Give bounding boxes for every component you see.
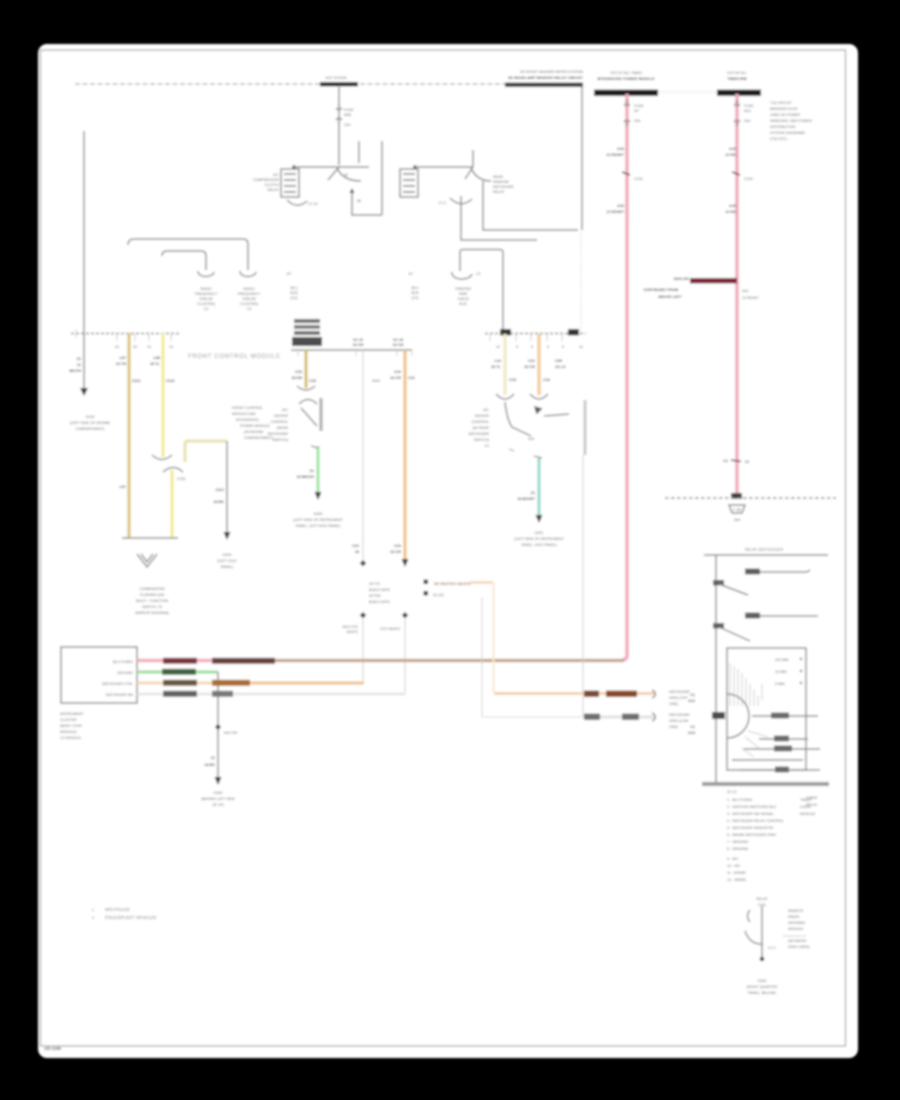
- svg-text:FLASHER (ON: FLASHER (ON: [140, 593, 165, 597]
- svg-text:B(+) FUSED: B(+) FUSED: [113, 660, 133, 664]
- svg-text:8 - GROUND: 8 - GROUND: [727, 847, 749, 851]
- svg-text:RADIO: RADIO: [243, 287, 255, 291]
- svg-text:B(+): B(+): [412, 286, 419, 290]
- svg-text:5 MIN: 5 MIN: [775, 682, 785, 686]
- svg-text:18 BK/OR: 18 BK/OR: [296, 475, 314, 479]
- svg-text:9: 9: [516, 345, 518, 349]
- svg-text:SWITCH, IN: SWITCH, IN: [142, 605, 162, 609]
- svg-text:SEATS: SEATS: [346, 630, 358, 634]
- svg-text:(W/ REAR: (W/ REAR: [472, 426, 489, 430]
- svg-text:18: 18: [355, 550, 359, 554]
- svg-text:DEFOGGER: DEFOGGER: [267, 432, 288, 436]
- svg-text:RELAY: RELAY: [493, 190, 505, 194]
- svg-text:GROUND: GROUND: [117, 671, 133, 675]
- svg-text:8: 8: [531, 345, 533, 349]
- svg-text:Z1: Z1: [310, 469, 314, 473]
- svg-text:HOT AT ALL TIMES: HOT AT ALL TIMES: [610, 71, 642, 75]
- svg-text:CLUSTER): CLUSTER): [197, 302, 215, 306]
- svg-text:23: 23: [133, 345, 137, 349]
- svg-text:14: 14: [147, 345, 151, 349]
- svg-text:C16: C16: [543, 378, 550, 382]
- svg-text:B7: B7: [287, 272, 291, 276]
- svg-text:6: 6: [547, 345, 549, 349]
- svg-text:C2: C2: [476, 272, 481, 276]
- svg-text:B(+): B(+): [291, 286, 298, 290]
- svg-text:Z110: Z110: [166, 379, 174, 383]
- svg-text:WINDOWS, SEE POWER: WINDOWS, SEE POWER: [770, 119, 812, 123]
- svg-text:F SB: F SB: [733, 508, 742, 512]
- svg-text:12 RD/WT: 12 RD/WT: [606, 153, 624, 157]
- svg-text:10 - N/C: 10 - N/C: [727, 864, 741, 868]
- svg-text:C20: C20: [309, 379, 316, 383]
- svg-text:18 YL: 18 YL: [491, 365, 502, 369]
- svg-text:SWITCH): SWITCH): [273, 438, 288, 442]
- svg-text:BUS: BUS: [290, 291, 298, 295]
- svg-text:SWITCH): SWITCH): [474, 438, 489, 442]
- svg-text:CONTINUED FROM: CONTINUED FROM: [643, 288, 678, 292]
- svg-text:G300: G300: [214, 791, 223, 795]
- svg-text:30: 30: [344, 173, 348, 177]
- svg-text:(IN ENGINE: (IN ENGINE: [244, 430, 264, 434]
- svg-text:BUILD DATE: BUILD DATE: [369, 600, 391, 604]
- svg-text:SYSTEM DIAGRAMS: SYSTEM DIAGRAMS: [770, 131, 806, 135]
- svg-text:HEATER: HEATER: [475, 414, 490, 418]
- svg-text:C2: C2: [484, 444, 489, 448]
- svg-text:G201: G201: [535, 531, 544, 535]
- svg-text:REAR: REAR: [493, 175, 503, 179]
- svg-text:20A: 20A: [744, 119, 751, 123]
- svg-text:DEFOGGER: DEFOGGER: [493, 185, 514, 189]
- svg-text:TIMES IPM: TIMES IPM: [727, 77, 746, 81]
- svg-text:M7: M7: [634, 109, 639, 113]
- svg-text:LOGIC: LOGIC: [800, 805, 812, 809]
- svg-text:COMPRESSOR: COMPRESSOR: [253, 178, 279, 182]
- svg-text:18 BK/WT: 18 BK/WT: [517, 497, 535, 501]
- svg-text:G100: G100: [86, 415, 95, 419]
- svg-text:DEFOGGER CTRL: DEFOGGER CTRL: [102, 682, 133, 686]
- svg-text:18 OR: 18 OR: [390, 550, 401, 554]
- svg-text:M12: M12: [744, 109, 751, 113]
- svg-text:RADIO: RADIO: [788, 915, 800, 919]
- svg-text:MULTI - FUNCTION: MULTI - FUNCTION: [136, 599, 169, 603]
- svg-text:1: 1: [92, 908, 94, 912]
- svg-text:W/ FRONT WASHER WIPER SYSTEM: W/ FRONT WASHER WIPER SYSTEM: [520, 70, 583, 74]
- svg-text:(LEFT SIDE OF ENGINE: (LEFT SIDE OF ENGINE: [70, 421, 111, 425]
- svg-text:FREQUENCY: FREQUENCY: [238, 292, 261, 296]
- svg-text:(T16 CKT): (T16 CKT): [770, 137, 787, 141]
- svg-text:TWISTED: TWISTED: [455, 287, 472, 291]
- svg-text:10 MIN: 10 MIN: [775, 670, 787, 674]
- svg-text:T16 CIRCUIT: T16 CIRCUIT: [770, 101, 793, 105]
- svg-text:BUS: BUS: [459, 302, 467, 306]
- svg-text:9 - N/C: 9 - N/C: [727, 857, 739, 861]
- svg-text:5: 5: [562, 345, 564, 349]
- svg-text:C1: C1: [690, 693, 695, 697]
- svg-text:18 DB: 18 DB: [291, 376, 302, 380]
- svg-text:22 C2: 22 C2: [727, 790, 737, 794]
- svg-text:C2 MODULE: C2 MODULE: [60, 736, 82, 740]
- svg-text:C22: C22: [352, 544, 359, 548]
- svg-text:18 OR: 18 OR: [390, 376, 401, 380]
- svg-text:C104: C104: [744, 177, 753, 181]
- svg-text:COMPARTMENT): COMPARTMENT): [244, 436, 273, 440]
- svg-text:AFTER: AFTER: [369, 594, 381, 598]
- svg-text:MODULE: MODULE: [800, 812, 816, 816]
- svg-text:24: 24: [115, 345, 119, 349]
- svg-text:REMOTE: REMOTE: [788, 909, 804, 913]
- svg-text:20A: 20A: [634, 119, 641, 123]
- svg-text:BUILD DATE: BUILD DATE: [369, 588, 391, 592]
- svg-text:30A: 30A: [734, 518, 741, 522]
- svg-text:RELAY: RELAY: [756, 897, 768, 901]
- svg-text:A22: A22: [528, 437, 534, 441]
- svg-text:1 - B(+) FUSED: 1 - B(+) FUSED: [727, 798, 753, 802]
- svg-text:CAN B: CAN B: [458, 297, 470, 301]
- svg-text:10: 10: [496, 345, 500, 349]
- svg-text:G302: G302: [758, 979, 767, 983]
- svg-text:FUSE: FUSE: [744, 104, 754, 108]
- svg-text:B6: B6: [745, 460, 749, 464]
- svg-text:A16: A16: [617, 204, 624, 208]
- svg-text:PANEL): PANEL): [221, 565, 234, 569]
- svg-text:PAIR: PAIR: [459, 292, 468, 296]
- svg-text:A8-1100: A8-1100: [44, 1046, 62, 1051]
- svg-text:12 - SPARE: 12 - SPARE: [727, 878, 747, 882]
- svg-text:LINE): LINE): [669, 725, 678, 729]
- svg-text:DEFOGGER: DEFOGGER: [669, 713, 690, 717]
- svg-text:UP TO: UP TO: [369, 582, 380, 586]
- svg-text:INTEGRATED: INTEGRATED: [236, 418, 259, 422]
- svg-text:L88: L88: [153, 356, 160, 360]
- svg-text:18 YL: 18 YL: [150, 362, 161, 366]
- svg-text:(RIGHT QUARTER: (RIGHT QUARTER: [747, 985, 778, 989]
- svg-text:C15: C15: [509, 378, 516, 382]
- svg-text:C1 4: C1 4: [438, 201, 446, 205]
- svg-text:Z1: Z1: [531, 491, 535, 495]
- svg-text:L87: L87: [119, 356, 126, 360]
- svg-text:10A: 10A: [344, 123, 351, 127]
- svg-text:18 OR: 18 OR: [524, 365, 535, 369]
- svg-text:DEFOGGER: DEFOGGER: [468, 432, 489, 436]
- svg-text:POLICE/FLEET VEHICLES: POLICE/FLEET VEHICLES: [105, 915, 157, 920]
- svg-text:4040: 4040: [372, 379, 380, 383]
- svg-text:2: 2: [92, 916, 94, 920]
- svg-text:12 RD/WT: 12 RD/WT: [742, 296, 760, 300]
- svg-text:BUS: BUS: [411, 291, 419, 295]
- svg-text:CONTROL: CONTROL: [471, 420, 489, 424]
- svg-text:Z112: Z112: [132, 379, 140, 383]
- svg-text:C24: C24: [394, 544, 402, 548]
- svg-text:3 - DEFOGGER SW SIGNAL: 3 - DEFOGGER SW SIGNAL: [727, 812, 774, 816]
- svg-text:HUB (IN: HUB (IN: [242, 297, 256, 301]
- svg-text:86: 86: [357, 199, 361, 203]
- svg-text:COMBINATION: COMBINATION: [139, 587, 164, 591]
- svg-text:12: 12: [579, 345, 583, 349]
- svg-text:13: 13: [169, 345, 173, 349]
- svg-text:W/ HEADLAMP WASHER RELAY CIRCU: W/ HEADLAMP WASHER RELAY CIRCUIT: [508, 76, 583, 80]
- svg-text:W/O HTD: W/O HTD: [342, 625, 358, 629]
- svg-text:A16: A16: [617, 147, 624, 151]
- svg-text:FRONT CONTROL MODULE: FRONT CONTROL MODULE: [188, 354, 281, 360]
- svg-text:WINDOW: WINDOW: [493, 180, 509, 184]
- svg-text:2 - IGNITION SWITCHED B(+): 2 - IGNITION SWITCHED B(+): [727, 805, 776, 809]
- svg-text:C90: C90: [555, 359, 562, 363]
- svg-text:CLUSTER): CLUSTER): [240, 302, 258, 306]
- svg-text:HUB (IN: HUB (IN: [199, 297, 213, 301]
- svg-text:(W/ AM/FM: (W/ AM/FM: [788, 939, 806, 943]
- svg-text:MODULE: MODULE: [788, 927, 804, 931]
- svg-text:GRID LINES): GRID LINES): [788, 945, 810, 949]
- svg-text:100 MIN: 100 MIN: [775, 658, 789, 662]
- svg-text:W/ HEATED SEATS: W/ HEATED SEATS: [434, 581, 471, 586]
- svg-text:Z2: Z2: [77, 357, 81, 361]
- svg-text:HEATER: HEATER: [274, 414, 289, 418]
- svg-text:18 BK: 18 BK: [213, 500, 224, 504]
- svg-text:FUSE: FUSE: [634, 104, 644, 108]
- svg-text:LINE): LINE): [669, 702, 678, 706]
- svg-text:C1: C1: [690, 725, 695, 729]
- svg-text:BK/TN: BK/TN: [69, 369, 81, 373]
- svg-text:FRONT CONTROL: FRONT CONTROL: [232, 406, 263, 410]
- svg-text:(BEHIND LEFT SIDE: (BEHIND LEFT SIDE: [201, 797, 235, 801]
- svg-text:12 RD/WT: 12 RD/WT: [606, 210, 624, 214]
- svg-text:18 OR: 18 OR: [353, 343, 364, 347]
- svg-text:A10: A10: [729, 204, 736, 208]
- svg-text:G200: G200: [223, 553, 232, 557]
- svg-text:C1 2: C1 2: [768, 946, 776, 950]
- svg-text:REAR DEFOGGER: REAR DEFOGGER: [745, 547, 784, 552]
- svg-text:A/C: A/C: [282, 408, 288, 412]
- svg-text:ANTENNA: ANTENNA: [788, 921, 806, 925]
- svg-text:Z112: Z112: [216, 488, 224, 492]
- svg-text:RELAY: RELAY: [267, 188, 279, 192]
- svg-text:C21: C21: [408, 376, 415, 380]
- svg-text:OF I/P): OF I/P): [212, 803, 224, 807]
- svg-text:CLUSTER: CLUSTER: [60, 718, 77, 722]
- svg-text:18 OR: 18 OR: [393, 343, 404, 347]
- svg-text:TIMER: TIMER: [800, 798, 812, 802]
- svg-text:(REAR: (REAR: [277, 426, 289, 430]
- svg-text:(C2): (C2): [412, 296, 419, 300]
- svg-text:A10: A10: [742, 289, 748, 293]
- svg-text:USED W/ POWER: USED W/ POWER: [770, 113, 800, 117]
- svg-text:11 - SPARE: 11 - SPARE: [727, 871, 746, 875]
- svg-text:BREAKER ALSO: BREAKER ALSO: [770, 107, 798, 111]
- svg-text:W/O RR: W/O RR: [224, 731, 238, 735]
- svg-text:ABOVE LEFT: ABOVE LEFT: [658, 295, 683, 299]
- svg-text:(C2): (C2): [291, 296, 298, 300]
- svg-text:C24: C24: [394, 370, 402, 374]
- svg-text:DEFOGGER SW: DEFOGGER SW: [106, 693, 134, 697]
- svg-text:5 - DEFOGGER INDICATOR: 5 - DEFOGGER INDICATOR: [727, 826, 774, 830]
- svg-text:MODULE): MODULE): [60, 730, 77, 734]
- svg-text:GRID (LOW: GRID (LOW: [669, 719, 689, 723]
- svg-text:18 LG: 18 LG: [555, 365, 566, 369]
- svg-text:HOT IN RUN: HOT IN RUN: [326, 76, 347, 80]
- svg-text:PANEL, BELOW): PANEL, BELOW): [748, 991, 776, 995]
- svg-text:C3: C3: [247, 307, 252, 311]
- svg-text:7 - GROUND: 7 - GROUND: [727, 840, 749, 844]
- svg-text:18 TN: 18 TN: [116, 362, 127, 366]
- svg-text:MODULE AND: MODULE AND: [232, 412, 256, 416]
- svg-text:A/C: A/C: [273, 173, 279, 177]
- svg-text:12 RD: 12 RD: [725, 153, 736, 157]
- svg-text:4 - DEFOGGER RELAY CONTROL: 4 - DEFOGGER RELAY CONTROL: [727, 819, 784, 823]
- svg-text:C1: C1: [723, 459, 728, 463]
- svg-text:HTD SEATS: HTD SEATS: [380, 627, 401, 631]
- svg-text:INSTRUMENT: INSTRUMENT: [60, 712, 84, 716]
- svg-text:GRID (TOP: GRID (TOP: [669, 696, 688, 700]
- svg-text:12: 12: [77, 363, 81, 367]
- svg-text:C2 22: C2 22: [353, 338, 363, 342]
- svg-text:COMPARTMENT): COMPARTMENT): [75, 427, 104, 431]
- svg-text:FREQUENCY: FREQUENCY: [195, 292, 218, 296]
- svg-text:PANEL, KICK PANEL): PANEL, KICK PANEL): [521, 543, 557, 547]
- svg-text:M36: M36: [344, 113, 351, 117]
- svg-text:(LEFT SIDE OF INSTRUMENT: (LEFT SIDE OF INSTRUMENT: [293, 518, 344, 522]
- svg-text:FUSE: FUSE: [344, 108, 354, 112]
- svg-text:C3: C3: [204, 307, 209, 311]
- svg-text:A/C: A/C: [483, 408, 489, 412]
- svg-text:(BODY CONT: (BODY CONT: [60, 724, 83, 728]
- svg-text:PANEL, LEFT KICK PANEL): PANEL, LEFT KICK PANEL): [295, 524, 340, 528]
- svg-text:18 BK: 18 BK: [204, 763, 215, 767]
- svg-text:S301 RD: S301 RD: [674, 277, 690, 281]
- svg-text:L44: L44: [494, 359, 501, 363]
- svg-text:G200: G200: [314, 512, 323, 516]
- svg-text:C2 24: C2 24: [393, 338, 404, 342]
- svg-text:6 - SENSE DEFOGGER GRID: 6 - SENSE DEFOGGER GRID: [727, 833, 776, 837]
- svg-text:C21: C21: [528, 359, 535, 363]
- svg-text:INTEGRATED POWER MODULE: INTEGRATED POWER MODULE: [597, 77, 655, 81]
- svg-text:RADIO: RADIO: [200, 287, 212, 291]
- svg-text:(LEFT SIDE OF INSTRUMENT: (LEFT SIDE OF INSTRUMENT: [514, 537, 565, 541]
- svg-text:HOT AT ALL: HOT AT ALL: [727, 71, 747, 75]
- svg-text:DISTRIBUTION: DISTRIBUTION: [770, 125, 796, 129]
- svg-text:C103: C103: [634, 177, 643, 181]
- svg-text:A12: A12: [688, 699, 695, 703]
- svg-text:B7: B7: [409, 272, 413, 276]
- svg-text:C332: C332: [177, 477, 186, 481]
- svg-text:L87: L87: [119, 485, 126, 489]
- svg-text:Z1: Z1: [211, 756, 215, 760]
- svg-text:(LEFT KICK: (LEFT KICK: [217, 559, 237, 563]
- svg-text:POWER MODULE: POWER MODULE: [240, 424, 271, 428]
- svg-text:C1 10: C1 10: [308, 202, 318, 206]
- svg-text:CLUTCH: CLUTCH: [264, 183, 279, 187]
- svg-text:MIRROR DIAGRAM): MIRROR DIAGRAM): [135, 611, 169, 615]
- svg-text:BASE: BASE: [433, 593, 444, 598]
- svg-text:12 RD: 12 RD: [725, 210, 736, 214]
- svg-text:CONTROL: CONTROL: [270, 420, 288, 424]
- svg-text:A13: A13: [688, 731, 695, 735]
- svg-text:W/O POLICE: W/O POLICE: [105, 907, 130, 912]
- svg-text:DEFOGGER: DEFOGGER: [669, 690, 690, 694]
- svg-text:A10: A10: [729, 147, 736, 151]
- svg-text:C25: C25: [295, 370, 302, 374]
